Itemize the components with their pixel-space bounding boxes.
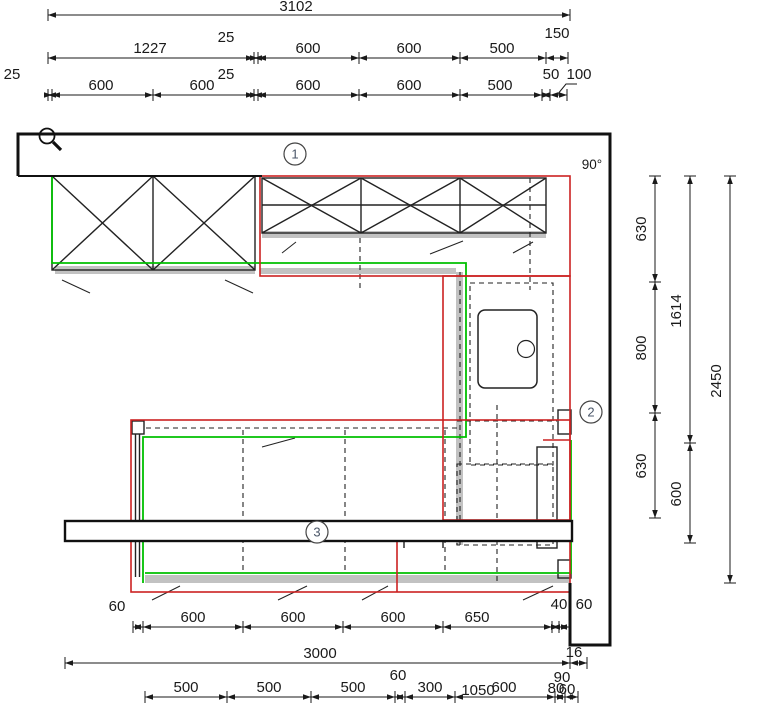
dimension-label: 25 bbox=[218, 29, 235, 46]
dimension-label: 150 bbox=[544, 25, 569, 42]
dimension-label: 50 bbox=[543, 66, 560, 83]
dimension-label: 600 bbox=[280, 609, 305, 626]
dimension-label: 500 bbox=[487, 77, 512, 94]
dim-chain-right-col3: 2450 bbox=[708, 176, 736, 583]
dimension-label: 600 bbox=[295, 77, 320, 94]
tall-cabinets bbox=[52, 176, 255, 270]
wall-outer bbox=[18, 134, 610, 645]
dimension-label: 600 bbox=[295, 40, 320, 57]
wall-jamb-top bbox=[558, 410, 571, 434]
magnifier-icon[interactable] bbox=[40, 129, 62, 151]
dimension-label: 600 bbox=[491, 679, 516, 696]
floor-plan-canvas: 3102122725600600500150256006002560060050… bbox=[0, 0, 777, 720]
dimension-label: 600 bbox=[88, 77, 113, 94]
red-outline-wall-cabinets bbox=[260, 176, 570, 276]
shadow-bottom-run bbox=[145, 575, 570, 583]
red-outline-bottom-run bbox=[131, 420, 570, 592]
callout-3: 3 bbox=[306, 521, 328, 543]
callout-label: 3 bbox=[313, 525, 320, 540]
dim-chain-right-col1: 630800630 bbox=[633, 176, 661, 518]
dimension-layer: 3102122725600600500150256006002560060050… bbox=[4, 0, 736, 703]
sink bbox=[478, 310, 537, 388]
dim-chain-top-row3: 256006002560060050050100 bbox=[4, 66, 592, 101]
dimension-label: 1050 bbox=[461, 682, 494, 699]
callout-1: 1 bbox=[284, 143, 306, 165]
wall-cabinets bbox=[262, 178, 546, 233]
walls bbox=[18, 134, 610, 645]
dimension-label: 500 bbox=[256, 679, 281, 696]
dim-chain-top-row2: 122725600600500150 bbox=[48, 25, 570, 64]
dimension-label: 16 bbox=[566, 644, 583, 661]
dimension-label: 2450 bbox=[708, 364, 725, 397]
dimension-label: 600 bbox=[396, 40, 421, 57]
shadow-wall-cabinets bbox=[262, 231, 546, 238]
dim-chain-right-col2: 1614600 bbox=[668, 176, 696, 543]
dim-chain-bottom-row2: 300016 bbox=[65, 644, 587, 669]
dimension-label: 600 bbox=[189, 77, 214, 94]
dimension-label: 500 bbox=[173, 679, 198, 696]
dimension-label: 1614 bbox=[668, 294, 685, 327]
angle-annotation: 90° bbox=[582, 157, 602, 172]
callout-2: 2 bbox=[580, 401, 602, 423]
dimension-label: 800 bbox=[633, 335, 650, 360]
dimension-label: 60 bbox=[576, 596, 593, 613]
dimension-label: 630 bbox=[633, 216, 650, 241]
callout-label: 2 bbox=[587, 405, 594, 420]
dimension-label: 3000 bbox=[303, 645, 336, 662]
dimension-label: 650 bbox=[464, 609, 489, 626]
dim-chain-bottom-row1: 606006006006504060 bbox=[109, 596, 593, 633]
shadow-counter-top bbox=[260, 268, 456, 274]
dimension-label: 60 bbox=[109, 598, 126, 615]
floor-plan-svg: 3102122725600600500150256006002560060050… bbox=[0, 0, 777, 720]
dimension-label: 3102 bbox=[279, 0, 312, 15]
dimension-label: 600 bbox=[668, 481, 685, 506]
dimension-label: 630 bbox=[633, 453, 650, 478]
dimension-label: 25 bbox=[218, 66, 235, 83]
dim-chain-top-overall: 3102 bbox=[48, 0, 570, 21]
dim-chain-bottom-row3: 500500500603001050600908060 bbox=[145, 667, 578, 703]
dimension-label: 600 bbox=[380, 609, 405, 626]
right-wall-appliances bbox=[537, 410, 571, 578]
dimension-label: 40 bbox=[551, 596, 568, 613]
dimension-label: 60 bbox=[390, 667, 407, 684]
faucet-icon bbox=[518, 341, 535, 358]
dimension-label: 60 bbox=[559, 681, 576, 698]
dimension-label: 300 bbox=[417, 679, 442, 696]
dimension-label: 600 bbox=[180, 609, 205, 626]
dimension-label: 1227 bbox=[133, 40, 166, 57]
callout-label: 1 bbox=[291, 147, 298, 162]
dimension-label: 500 bbox=[489, 40, 514, 57]
dimension-label: 25 bbox=[4, 66, 21, 83]
dimension-label: 600 bbox=[396, 77, 421, 94]
dimension-label: 500 bbox=[340, 679, 365, 696]
dimension-label: 100 bbox=[566, 66, 591, 83]
